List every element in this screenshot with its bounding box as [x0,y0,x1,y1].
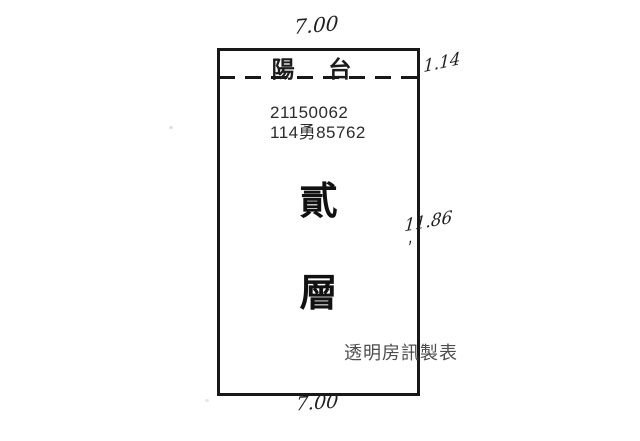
scan-speck [169,126,173,129]
id-block: 21150062 114勇85762 [270,103,366,143]
floor-label-char-2: 層 [217,262,420,317]
scan-speck [205,399,209,402]
handwritten-top-width-dimension: 7.00 [293,11,339,39]
handwritten-bottom-width-dimension: 7.00 [295,390,339,415]
handwritten-balcony-depth-dimension: 1.14 [423,49,461,77]
floor-label-char-1: 貳 [217,170,420,225]
floor-plan-sheet: 7.00 陽 台 21150062 114勇85762 貳 層 透明房訊製表 1… [0,0,640,441]
producer-credit: 透明房訊製表 [344,339,458,365]
serial-number-line: 21150062 [270,103,366,123]
balcony-label: 陽 台 [217,50,420,84]
case-number-line: 114勇85762 [270,123,366,143]
